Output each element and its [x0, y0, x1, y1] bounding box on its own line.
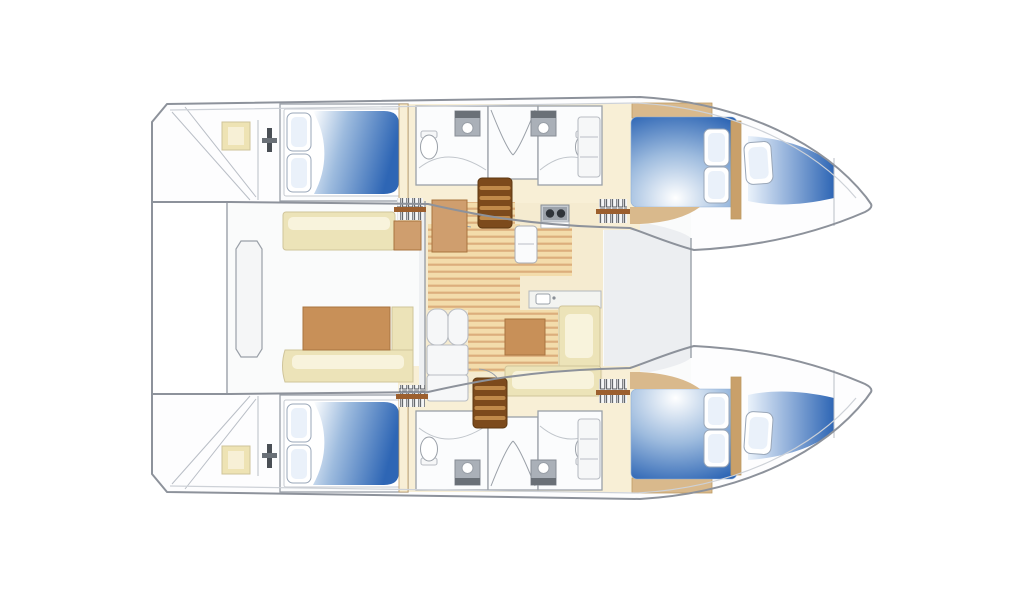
cabin-door-hinge: [262, 453, 277, 458]
pillow-inner: [291, 449, 307, 479]
settee-cushion: [448, 309, 468, 345]
burner: [546, 209, 554, 217]
pillow-inner: [291, 408, 307, 438]
deck-hatch-lid: [228, 451, 244, 469]
sink-top: [531, 478, 556, 485]
steps-rail: [596, 390, 630, 395]
barrel-body: [473, 378, 507, 428]
sink-top: [455, 111, 480, 118]
dinette-table: [505, 319, 545, 355]
catamaran-floor-plan: [0, 0, 1024, 600]
port-aft-cabin: [280, 104, 408, 201]
sink-bowl: [538, 123, 549, 134]
settee-base: [427, 345, 468, 375]
steps-rail: [596, 209, 630, 214]
headboard: [731, 377, 741, 475]
deck-hatch-lid: [228, 127, 244, 145]
cockpit-table: [303, 307, 390, 350]
cockpit-bench-side: [392, 307, 413, 350]
bed-quilt: [313, 111, 399, 194]
bench-cushion: [288, 217, 390, 230]
steps-rail: [394, 207, 426, 212]
cabin-door-hinge: [262, 138, 277, 143]
headboard: [731, 121, 741, 219]
sink-bowl: [538, 463, 549, 474]
forepeak-pillow: [744, 411, 774, 455]
pillow-inner: [708, 133, 725, 162]
starboard-aft-cabin: [280, 395, 408, 492]
vanity-unit: [578, 419, 600, 479]
toilet: [421, 437, 438, 461]
bench-cushion: [292, 355, 404, 369]
sink-top: [531, 111, 556, 118]
settee-cushion: [427, 309, 448, 345]
galley-sink: [536, 294, 550, 304]
barrel-cabinet-fwd: [478, 178, 512, 228]
sink-top: [455, 478, 480, 485]
pillow-inner: [708, 434, 725, 463]
pillow-inner: [708, 171, 725, 199]
pillow-inner: [748, 416, 769, 449]
transom-platform-module: [236, 241, 262, 357]
forepeak-pillow: [744, 141, 774, 185]
vanity-unit: [578, 117, 600, 177]
burner: [557, 209, 565, 217]
pillow-inner: [708, 397, 725, 425]
pillow-inner: [291, 158, 307, 188]
bed-quilt: [313, 402, 399, 485]
wardrobe-strip: [399, 395, 408, 492]
bench-cushion: [512, 371, 594, 389]
pillow-inner: [291, 117, 307, 147]
steps-rail: [396, 394, 428, 399]
sink-bowl: [462, 463, 473, 474]
faucet: [552, 296, 555, 299]
toilet: [421, 135, 438, 159]
sink-bowl: [462, 123, 473, 134]
pillow-inner: [748, 146, 769, 179]
wardrobe-strip: [399, 104, 408, 201]
cockpit-seat: [394, 221, 421, 250]
barrel-cabinet-aft: [473, 378, 507, 428]
bench-cushion: [565, 314, 593, 358]
barrel-body: [478, 178, 512, 228]
